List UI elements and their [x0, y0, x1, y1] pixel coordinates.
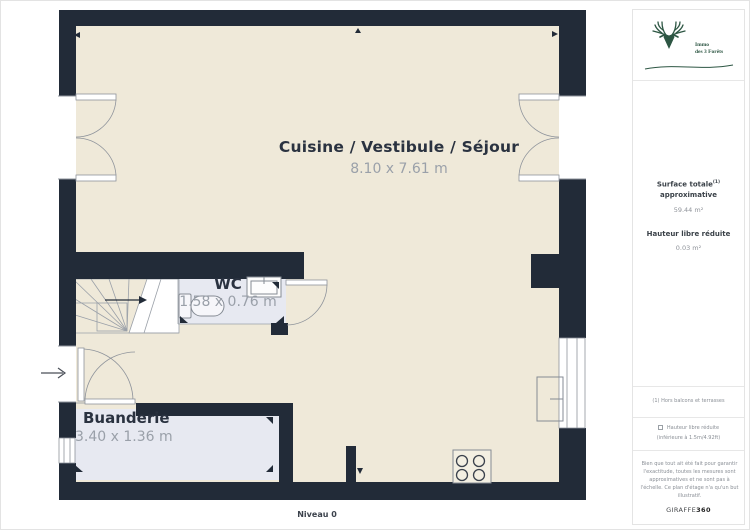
footnote-text: (1) Hors balcons et terrasses	[633, 398, 744, 404]
logo-swoosh-icon	[641, 62, 737, 72]
reduced-height-value: 0.03 m²	[633, 244, 744, 252]
surface-footnote-mark: (1)	[713, 180, 720, 185]
wall-bottom	[59, 482, 586, 500]
window-left-laundry	[59, 438, 75, 463]
laundry-door-leaf	[85, 399, 135, 404]
main-room-label: Cuisine / Vestibule / Séjour	[249, 138, 549, 156]
legend-row: Hauteur libre réduite	[633, 425, 744, 431]
main-room-dimensions: 8.10 x 7.61 m	[249, 161, 549, 177]
wall-stub-wc	[271, 323, 288, 335]
legend-detail: (inférieure à 1.5m/4.92ft)	[633, 435, 744, 441]
stove-icon	[453, 450, 491, 483]
legend-checkbox-icon	[658, 425, 663, 430]
laundry-label: Buanderie	[83, 409, 243, 427]
agency-logo: Immo des 3 Forêts	[633, 16, 744, 76]
level-label: Niveau 0	[267, 510, 367, 519]
info-sidebar: Immo des 3 Forêts Surface totale(1) appr…	[632, 9, 745, 525]
brand-line2: des 3 Forêts	[695, 49, 723, 56]
wall-right-protrusion	[531, 254, 559, 288]
disclaimer-text: Bien que tout ait été fait pour garantir…	[640, 460, 739, 500]
wall-left-lower	[59, 402, 76, 438]
wc-dimensions: 1.58 x 0.76 m	[174, 294, 282, 310]
wall-right-lower	[559, 428, 586, 483]
brand-line1: Immo	[695, 42, 723, 49]
wall-right-middle	[559, 179, 586, 338]
surface-total-label: Surface totale(1)	[633, 180, 744, 188]
wall-top	[59, 10, 586, 26]
sidebar-divider-1	[633, 80, 744, 81]
reduced-height-label: Hauteur libre réduite	[633, 230, 744, 238]
wall-laundry-right	[279, 403, 293, 483]
sidebar-divider-3	[633, 417, 744, 418]
brand-name: Immo des 3 Forêts	[695, 42, 723, 56]
surface-total-value: 59.44 m²	[633, 206, 744, 214]
floor-plan-page: Cuisine / Vestibule / Séjour 8.10 x 7.61…	[0, 0, 750, 530]
stag-logo-icon	[647, 18, 691, 62]
floor-plan-drawing	[1, 1, 631, 530]
laundry-dimensions: 3.40 x 1.36 m	[75, 429, 235, 445]
wall-left-bottom	[59, 463, 76, 483]
legend-label: Hauteur libre réduite	[667, 425, 719, 431]
wc-label: WC	[178, 275, 278, 293]
giraffe360-watermark: GIRAFFE360	[633, 506, 744, 514]
surface-total-label-2: approximative	[633, 191, 744, 199]
wall-stub-bottom	[346, 446, 356, 482]
wall-left-upper	[59, 10, 76, 96]
sidebar-divider-4	[633, 450, 744, 451]
sidebar-divider-2	[633, 386, 744, 387]
wall-right-upper	[559, 10, 586, 96]
